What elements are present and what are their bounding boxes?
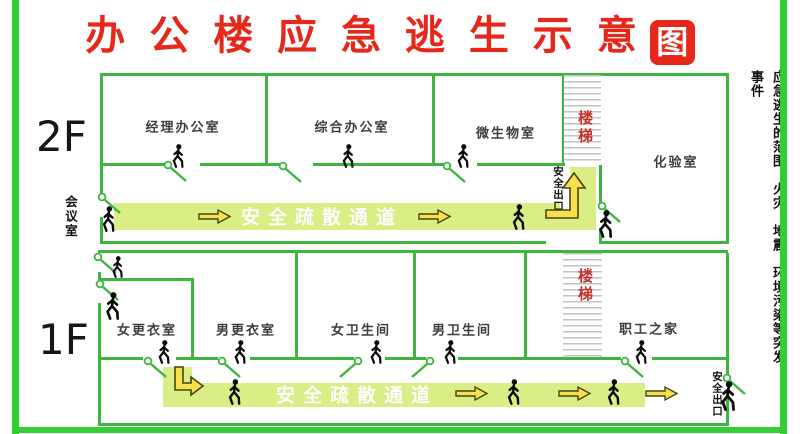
wall (200, 163, 280, 166)
door-icon (337, 356, 363, 380)
wall (100, 73, 729, 76)
page-title: 办 公 楼 应 急 逃 生 示 意图 (0, 12, 780, 65)
person-icon (505, 379, 522, 405)
room-label: 职工之家 (619, 319, 679, 338)
door-icon (278, 161, 304, 185)
wall (652, 357, 728, 360)
frame-border (12, 0, 19, 434)
stairs-label: 楼梯 (575, 110, 596, 146)
room-label: 女更衣室 (117, 320, 177, 339)
room-label: 综合办公室 (314, 117, 389, 136)
room-label: 男卫生间 (432, 320, 492, 339)
wall (98, 423, 729, 426)
room-label: 微生物室 (476, 123, 536, 142)
wall (726, 253, 729, 375)
wall (726, 73, 729, 244)
arrow-right-icon (645, 386, 679, 401)
wall (432, 73, 435, 166)
person-icon (226, 379, 243, 405)
room-label: 化验室 (653, 152, 698, 171)
person-icon (110, 256, 125, 278)
wall (98, 357, 143, 360)
wall (413, 253, 416, 360)
wall (100, 73, 103, 198)
room-label: 经理办公室 (145, 117, 220, 136)
wall (524, 253, 527, 360)
stairs-label: 楼梯 (575, 268, 596, 304)
person-icon (510, 204, 527, 230)
person-icon (170, 144, 186, 168)
evacuation-diagram-poster: 办 公 楼 应 急 逃 生 示 意图 2F 1F 应急逃生的范围：火灾、地震、环… (0, 0, 800, 434)
wall (313, 163, 433, 166)
wall (191, 278, 194, 360)
arrow-turn-right-icon (172, 366, 206, 400)
floor-label-2f: 2F (36, 112, 87, 161)
arrow-right-icon (198, 209, 232, 224)
title-boxed-char: 图 (650, 20, 695, 65)
meeting-room-label: 会议室 (61, 195, 80, 239)
title-text: 办 公 楼 应 急 逃 生 示 意 (85, 13, 641, 59)
floor-label-1f: 1F (38, 315, 89, 364)
wall (100, 241, 546, 244)
person-icon (596, 210, 615, 238)
frame-border (780, 0, 787, 434)
wall (100, 163, 166, 166)
person-icon (103, 292, 122, 320)
arrow-turn-up-icon (544, 170, 590, 222)
room-label: 女卫生间 (331, 320, 391, 339)
person-icon (605, 379, 622, 405)
person-icon (633, 340, 649, 364)
person-icon (340, 144, 356, 168)
wall (176, 357, 218, 360)
person-icon (100, 206, 117, 232)
wall (295, 253, 298, 360)
corridor-label: 安全疏散通道 (241, 203, 403, 230)
room-label: 男更衣室 (216, 320, 276, 339)
arrow-right-icon (558, 386, 592, 401)
corridor-label: 安全疏散通道 (276, 381, 438, 408)
wall (98, 303, 101, 426)
door-icon (409, 356, 435, 380)
wall (458, 357, 621, 360)
person-icon (442, 340, 458, 364)
person-icon (156, 340, 172, 364)
arrow-right-icon (455, 386, 489, 401)
arrow-right-icon (418, 209, 452, 224)
frame-border (12, 427, 787, 433)
wall (599, 241, 729, 244)
person-icon (455, 144, 471, 168)
person-icon (368, 340, 384, 364)
wall (265, 73, 268, 166)
person-icon (232, 340, 248, 364)
person-icon (718, 381, 738, 411)
